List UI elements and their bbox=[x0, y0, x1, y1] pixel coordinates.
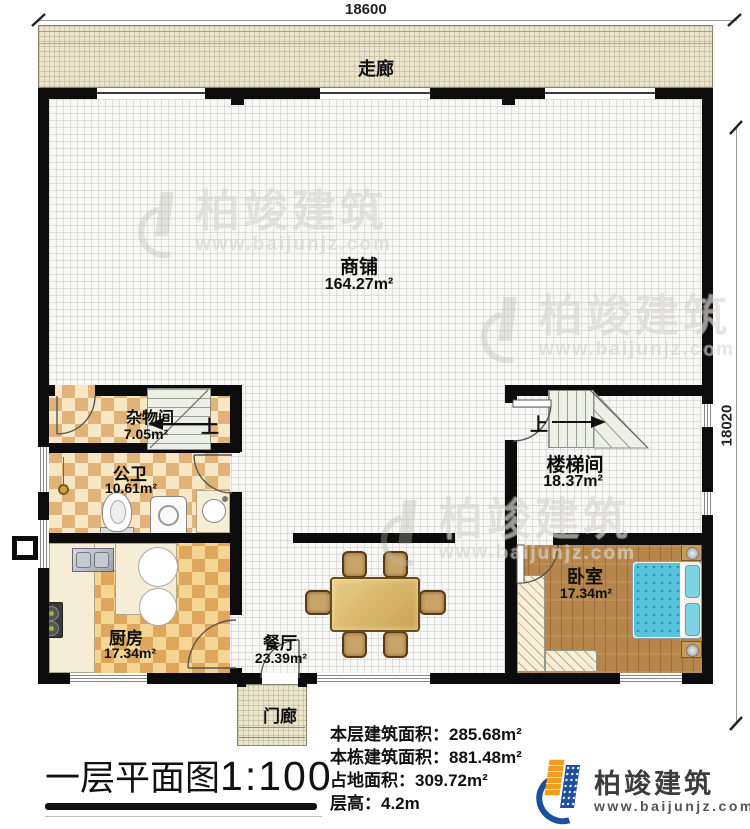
title-underline bbox=[45, 803, 317, 810]
floor-plan-canvas: 18600 18020 bbox=[0, 0, 750, 829]
stairwell-area: 18.37m² bbox=[543, 473, 603, 491]
info-label: 本栋建筑面积： bbox=[330, 748, 449, 767]
door-panel bbox=[513, 400, 551, 407]
brand-url: www.baijunjz.com bbox=[594, 798, 750, 814]
brand-name: 柏竣建筑 bbox=[594, 762, 714, 801]
info-label: 层高： bbox=[330, 794, 381, 813]
title-thin-line bbox=[45, 816, 322, 817]
info-label: 占地面积： bbox=[330, 771, 415, 790]
storage-label: 杂物间 bbox=[126, 404, 174, 428]
shop-area: 164.27m² bbox=[325, 276, 394, 294]
dining-area: 23.39m² bbox=[255, 650, 307, 666]
bathroom-area: 10.61m² bbox=[105, 480, 157, 496]
plan-title-scale: 1:100 bbox=[220, 753, 333, 800]
stairs-up-label: 上 bbox=[530, 411, 548, 437]
bedroom-area: 17.34m² bbox=[560, 585, 612, 601]
kitchen-area: 17.34m² bbox=[104, 645, 156, 661]
building-info-block: 本层建筑面积：285.68m² 本栋建筑面积：881.48m² 占地面积：309… bbox=[330, 723, 522, 815]
info-label: 本层建筑面积： bbox=[330, 725, 449, 744]
plan-title-text: 一层平面图 bbox=[45, 750, 220, 801]
porch-label: 门廊 bbox=[263, 702, 297, 727]
shop-label: 商铺 bbox=[340, 252, 378, 279]
plan-annotations-svg bbox=[0, 0, 750, 829]
info-value: 285.68m² bbox=[449, 725, 522, 744]
info-value: 881.48m² bbox=[449, 748, 522, 767]
stairs-up-label: 上 bbox=[201, 413, 219, 439]
corridor-label: 走廊 bbox=[358, 55, 394, 81]
plan-title: 一层平面图1:100 bbox=[45, 750, 333, 801]
brand-logo-icon bbox=[536, 757, 586, 815]
storage-area: 7.05m² bbox=[124, 426, 168, 442]
info-value: 309.72m² bbox=[415, 771, 488, 790]
door-panel bbox=[517, 545, 524, 583]
info-value: 4.2m bbox=[381, 794, 420, 813]
